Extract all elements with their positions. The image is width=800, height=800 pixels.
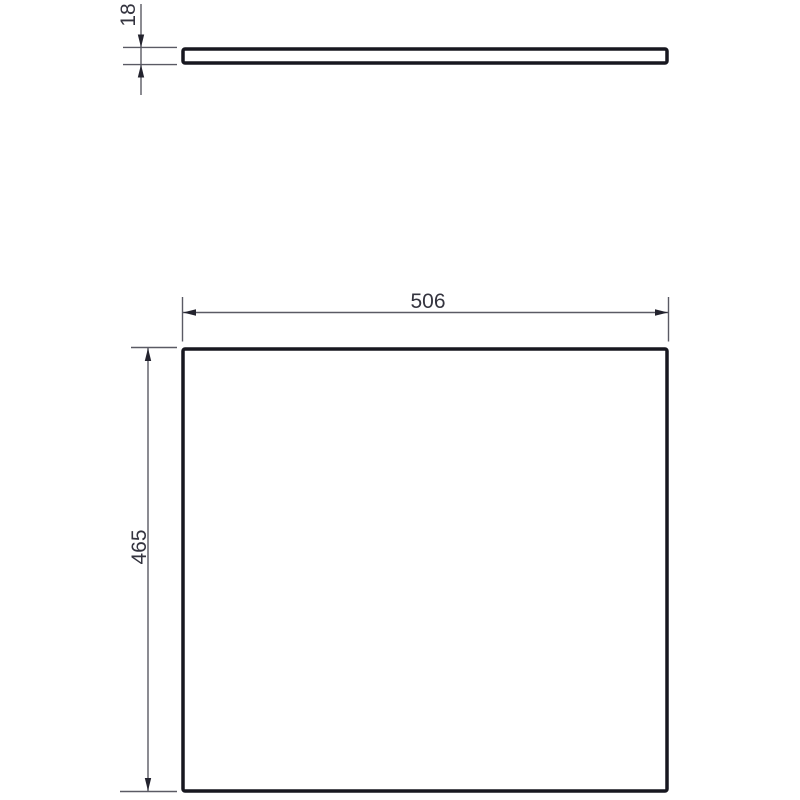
width-dimension: 506 <box>183 290 669 342</box>
panel-side-view <box>183 49 667 63</box>
technical-drawing-page: 18 506 465 <box>0 0 800 800</box>
width-arrowhead-left-icon <box>183 309 196 315</box>
panel-dimension-drawing: 18 506 465 <box>0 0 800 800</box>
height-dimension: 465 <box>120 348 177 792</box>
panel-front-view <box>183 349 667 791</box>
panel-edge-outline <box>183 49 667 63</box>
thickness-dimension: 18 <box>117 3 177 95</box>
panel-face-outline <box>183 349 667 791</box>
height-arrowhead-down-icon <box>145 778 151 791</box>
thickness-arrowhead-up-icon <box>138 65 144 78</box>
thickness-dimension-label: 18 <box>117 3 140 26</box>
height-arrowhead-up-icon <box>145 348 151 361</box>
height-dimension-label: 465 <box>128 529 151 564</box>
thickness-arrowhead-down-icon <box>138 35 144 48</box>
width-dimension-label: 506 <box>410 290 445 313</box>
width-arrowhead-right-icon <box>655 309 668 315</box>
